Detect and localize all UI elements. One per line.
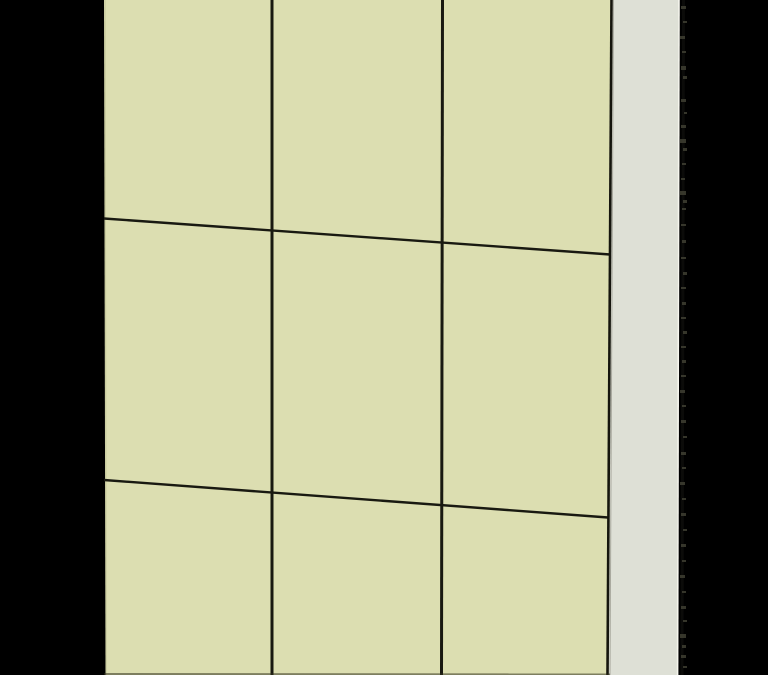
- edge-speck: [681, 606, 686, 609]
- edge-speck: [682, 645, 686, 648]
- edge-speck: [682, 591, 686, 593]
- edge-speck: [681, 178, 685, 180]
- edge-speck: [680, 139, 686, 143]
- edge-speck: [681, 655, 686, 658]
- edge-speck: [682, 360, 686, 363]
- edge-speck: [683, 21, 687, 23]
- edge-speck: [681, 317, 686, 319]
- edge-speck: [681, 287, 686, 289]
- viewport-3d[interactable]: [0, 0, 768, 675]
- edge-speck: [681, 66, 686, 70]
- edge-speck: [680, 482, 685, 485]
- edge-speck: [682, 302, 686, 305]
- edge-speck: [683, 148, 687, 151]
- edge-speck: [681, 544, 686, 547]
- edge-speck: [681, 6, 686, 9]
- edge-speck: [680, 36, 685, 39]
- edge-speck: [682, 405, 686, 407]
- edge-speck: [681, 452, 686, 455]
- edge-speck: [682, 560, 686, 562]
- edge-speck: [682, 498, 686, 500]
- edge-speck: [683, 666, 687, 668]
- scene-svg: [0, 0, 768, 675]
- edge-speck: [683, 76, 687, 79]
- edge-speck: [681, 224, 686, 226]
- edge-speck: [681, 375, 686, 377]
- edge-speck: [681, 513, 686, 516]
- edge-speck: [681, 125, 686, 128]
- edge-speck: [683, 436, 687, 438]
- edge-speck: [684, 112, 687, 114]
- edge-speck: [682, 467, 686, 469]
- edge-speck: [683, 331, 687, 334]
- edge-speck: [682, 240, 686, 243]
- edge-speck: [682, 51, 686, 53]
- edge-speck: [682, 163, 686, 165]
- panel-seam-vertical: [442, 0, 443, 675]
- edge-speck: [681, 99, 686, 102]
- edge-speck: [680, 390, 685, 393]
- wall-front-face[interactable]: [104, 0, 612, 675]
- edge-speck: [682, 208, 686, 210]
- edge-speck: [680, 634, 686, 638]
- edge-speck: [680, 191, 686, 195]
- edge-speck: [683, 272, 687, 275]
- edge-speck: [683, 529, 687, 531]
- wall-side-face[interactable]: [609, 0, 679, 675]
- edge-speck: [683, 200, 687, 203]
- edge-speck: [683, 620, 687, 622]
- edge-speck: [681, 257, 686, 259]
- edge-speck: [681, 346, 686, 348]
- edge-speck: [681, 420, 686, 423]
- edge-speck: [680, 575, 685, 578]
